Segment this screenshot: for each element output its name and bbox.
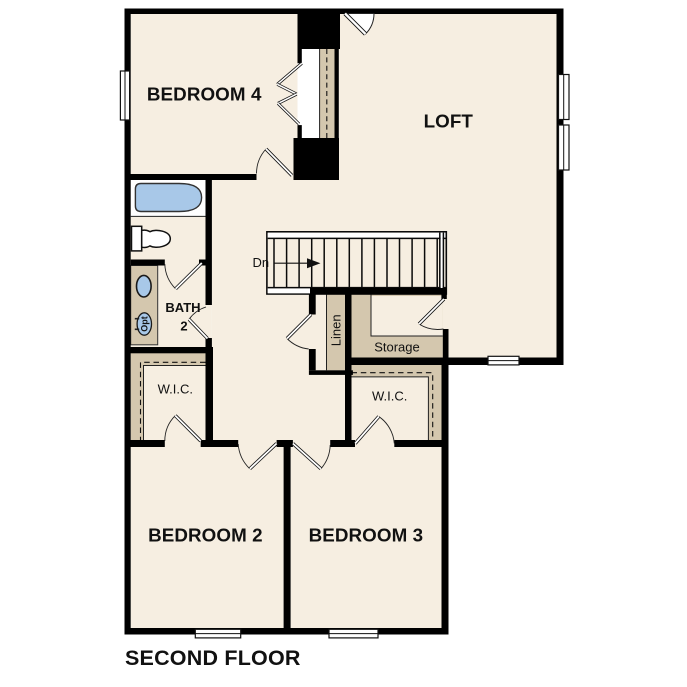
svg-text:Linen: Linen: [329, 314, 344, 346]
svg-text:W.I.C.: W.I.C.: [372, 389, 407, 404]
svg-text:BEDROOM 4: BEDROOM 4: [147, 83, 262, 104]
svg-text:2: 2: [180, 319, 187, 334]
svg-text:W.I.C.: W.I.C.: [158, 382, 193, 397]
svg-text:Opt: Opt: [139, 316, 149, 332]
svg-text:Dn: Dn: [252, 255, 269, 270]
svg-text:BEDROOM 2: BEDROOM 2: [148, 525, 263, 546]
svg-text:LOFT: LOFT: [424, 111, 474, 132]
svg-text:SECOND FLOOR: SECOND FLOOR: [125, 646, 301, 670]
svg-text:BEDROOM 3: BEDROOM 3: [309, 525, 424, 546]
svg-text:Storage: Storage: [374, 340, 420, 355]
svg-text:BATH: BATH: [165, 300, 200, 315]
